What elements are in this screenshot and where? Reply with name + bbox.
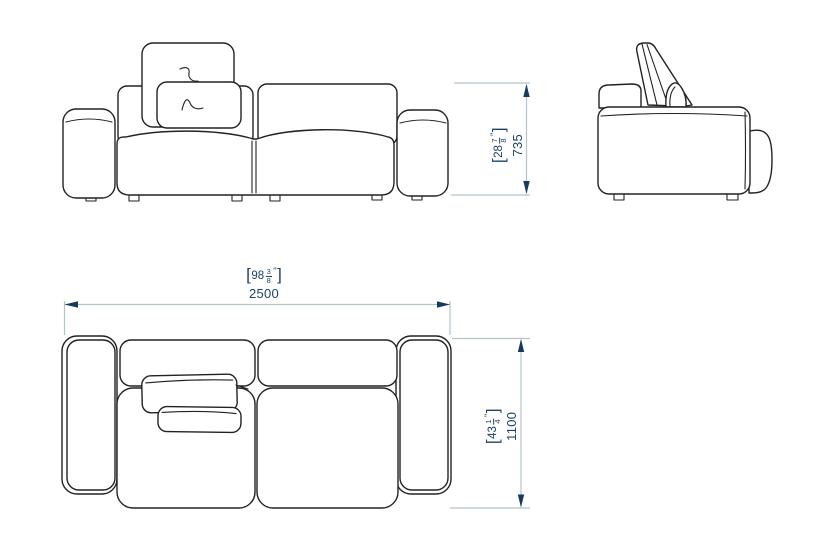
side-view-drawing bbox=[598, 43, 772, 200]
depth-metric-value: 1100 bbox=[504, 411, 517, 440]
top-back-cushion-right bbox=[258, 340, 397, 386]
technical-drawing-canvas bbox=[0, 0, 834, 558]
arrow-right bbox=[437, 301, 450, 307]
bracket: ] bbox=[485, 408, 499, 413]
side-seat-body bbox=[598, 107, 750, 194]
inches-whole: 43 bbox=[488, 426, 500, 439]
arrow-up bbox=[523, 84, 529, 97]
width-metric-value: 2500 bbox=[249, 287, 279, 300]
top-small-pillow-group bbox=[158, 406, 241, 432]
top-seat-right bbox=[257, 388, 398, 508]
front-view-drawing bbox=[63, 43, 448, 201]
inch-fraction: 3 8 bbox=[266, 268, 272, 286]
front-small-pillow bbox=[157, 82, 241, 128]
inch-mark: " bbox=[273, 267, 276, 277]
depth-imperial-value: [ 43 1 4 " ] bbox=[485, 408, 503, 445]
sofa-dimension-drawing: [ 98 3 8 " ] 2500 [ 28 7 8 " bbox=[0, 0, 834, 558]
inch-fraction: 7 8 bbox=[491, 137, 509, 143]
inches-whole: 28 bbox=[494, 145, 506, 158]
bracket: [ bbox=[485, 439, 499, 444]
arrow-left bbox=[65, 301, 79, 307]
bracket: ] bbox=[491, 127, 505, 132]
top-small-pillow bbox=[158, 406, 241, 432]
side-armrest bbox=[599, 84, 641, 108]
width-imperial-value: [ 98 3 8 " ] bbox=[246, 268, 283, 286]
side-backrest bbox=[749, 130, 772, 193]
inch-mark: " bbox=[484, 413, 494, 416]
inch-mark: " bbox=[490, 132, 500, 135]
top-view-drawing bbox=[62, 336, 451, 508]
top-armrest-left-seam bbox=[67, 340, 115, 490]
height-metric-value: 735 bbox=[510, 134, 523, 157]
side-small-pillow bbox=[666, 83, 686, 107]
front-armrest-right bbox=[397, 110, 448, 196]
height-imperial-value: [ 28 7 8 " ] bbox=[491, 127, 509, 164]
bracket: [ bbox=[246, 268, 251, 282]
width-dimension bbox=[65, 301, 451, 335]
arrow-down bbox=[518, 495, 524, 508]
arrow-down bbox=[523, 181, 529, 194]
seat-seam bbox=[745, 112, 746, 189]
inch-fraction: 1 4 bbox=[485, 418, 503, 424]
front-armrest-left bbox=[63, 109, 115, 198]
bracket: ] bbox=[277, 268, 282, 282]
bracket: [ bbox=[491, 158, 505, 163]
inches-whole: 98 bbox=[251, 271, 264, 283]
arrow-up bbox=[518, 339, 524, 352]
top-armrest-right-seam bbox=[400, 340, 448, 490]
